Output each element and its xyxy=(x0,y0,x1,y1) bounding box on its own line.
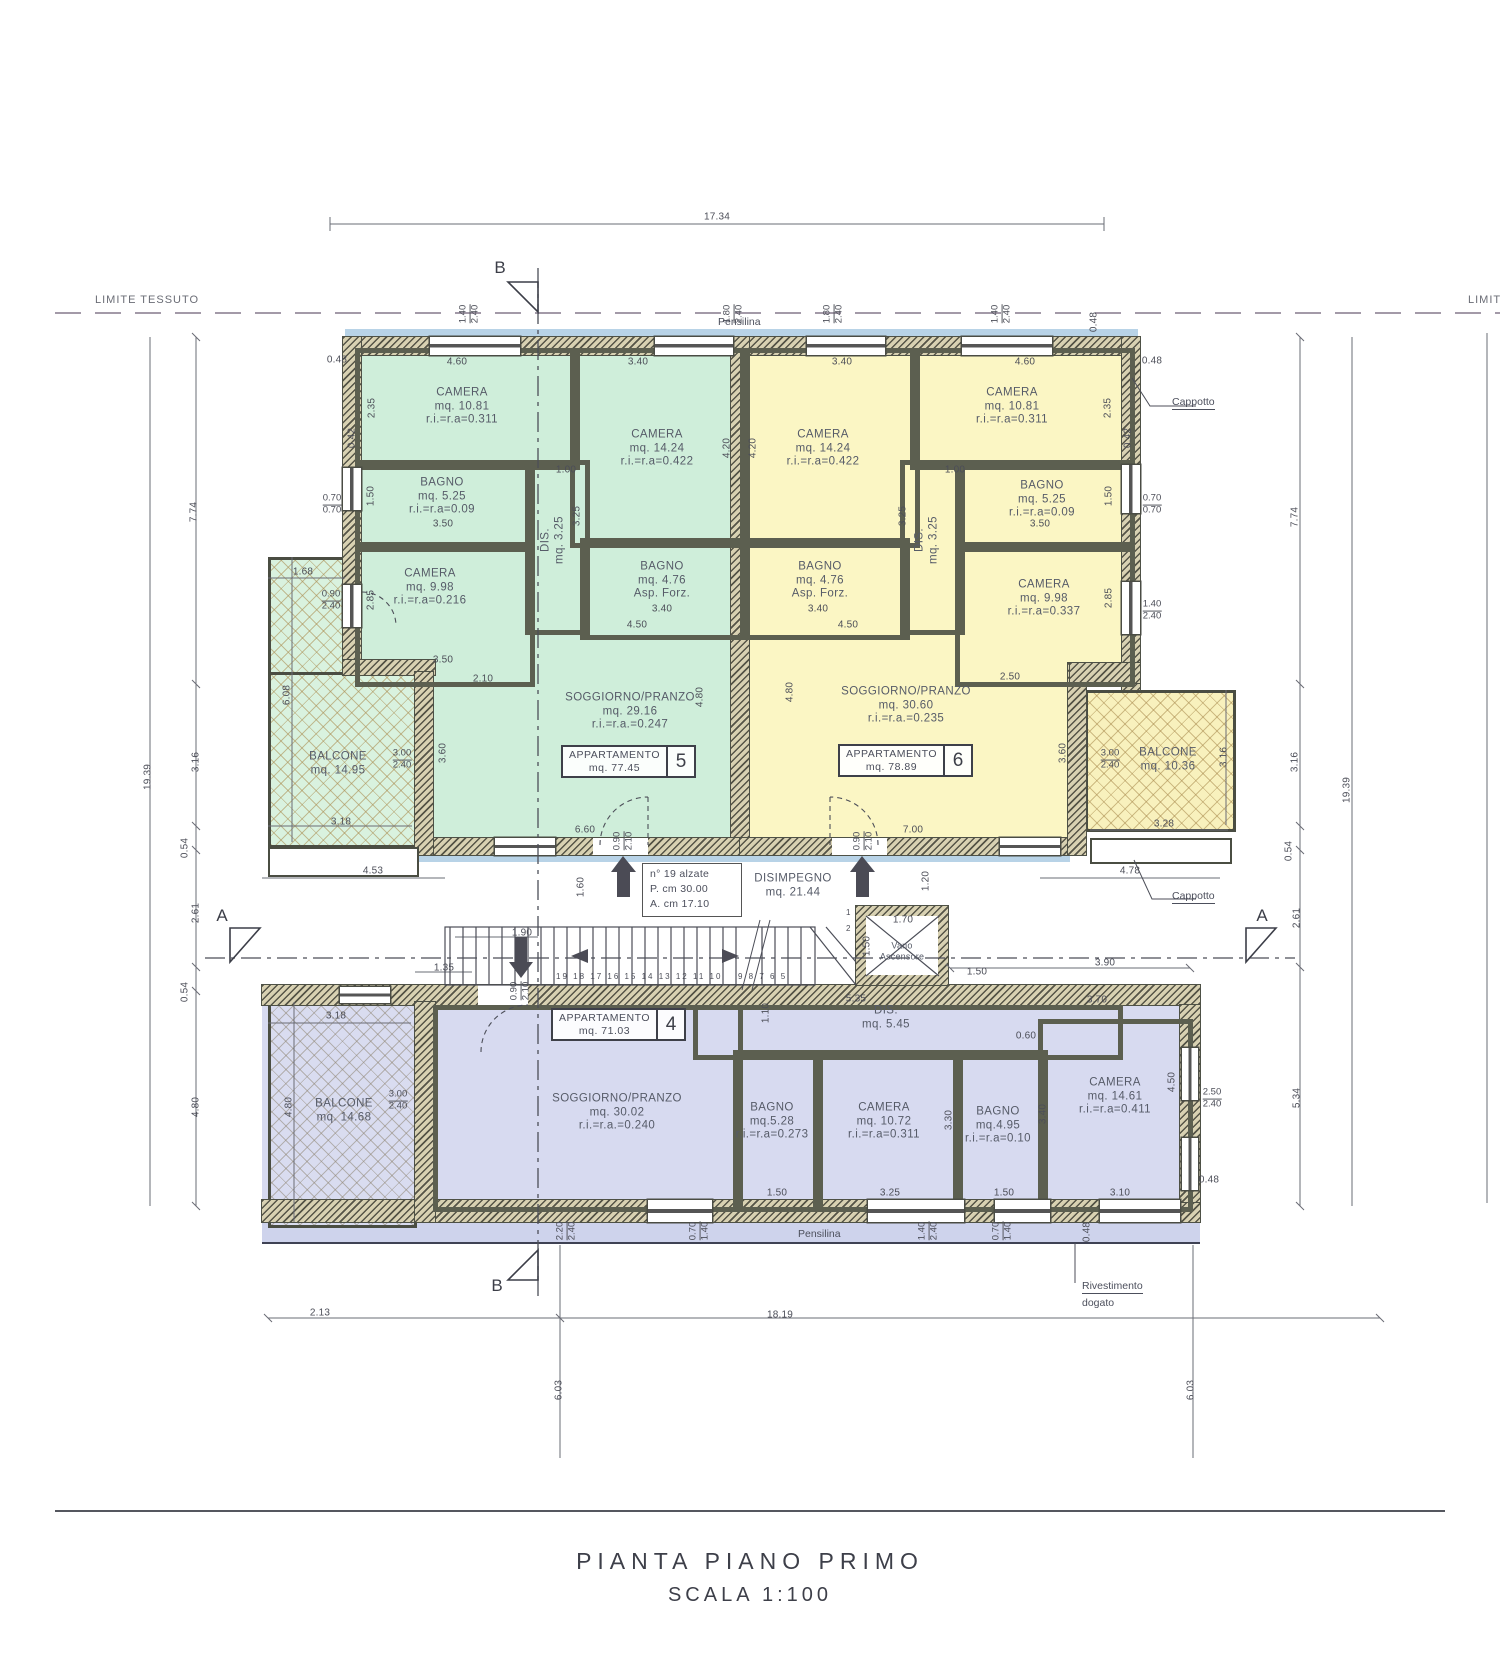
stair-digit-1: 1 xyxy=(846,908,852,917)
apartment-4-box: APPARTAMENTOmq. 71.03 4 xyxy=(551,1008,686,1041)
pensilina-top-label: Pensilina xyxy=(718,316,761,328)
rivestimento-label-2: dogato xyxy=(1082,1297,1114,1309)
cappotto-top-label: Cappotto xyxy=(1172,396,1215,410)
limite-tessuto-right: LIMITE TESSUTO xyxy=(1468,294,1500,306)
apartment-5-box: APPARTAMENTOmq. 77.45 5 xyxy=(561,745,696,778)
sheet-scale: SCALA 1:100 xyxy=(0,1584,1500,1607)
sheet-title: PIANTA PIANO PRIMO xyxy=(0,1548,1500,1575)
title-block: PIANTA PIANO PRIMO SCALA 1:100 xyxy=(0,1548,1500,1607)
stair-numbers-left: 19 18 17 16 15 14 13 12 11 10 xyxy=(556,972,722,981)
stair-digit-2: 2 xyxy=(846,924,852,933)
apartment-6-box: APPARTAMENTOmq. 78.89 6 xyxy=(838,744,973,777)
section-a-left: A xyxy=(216,906,227,926)
disimpegno-label: DISIMPEGNOmq. 21.44 xyxy=(754,872,831,899)
cappotto-mid-label: Cappotto xyxy=(1172,890,1215,904)
plan-linework xyxy=(0,0,1500,1658)
section-a-right: A xyxy=(1256,906,1267,926)
section-b-bottom: B xyxy=(491,1276,502,1296)
pensilina-bottom-label: Pensilina xyxy=(798,1228,841,1240)
section-b-top: B xyxy=(494,258,505,278)
limite-tessuto-left: LIMITE TESSUTO xyxy=(95,294,199,306)
stair-note-box: n° 19 alzate P. cm 30.00 A. cm 17.10 xyxy=(642,863,742,917)
floor-plan-sheet: LIMITE TESSUTO LIMITE TESSUTO Pensilina … xyxy=(0,0,1500,1658)
elevator-label: VanoAscensore xyxy=(880,940,924,961)
stair-numbers-right: 9 8 7 6 5 xyxy=(738,972,787,981)
rivestimento-label-1: Rivestimento xyxy=(1082,1280,1143,1294)
